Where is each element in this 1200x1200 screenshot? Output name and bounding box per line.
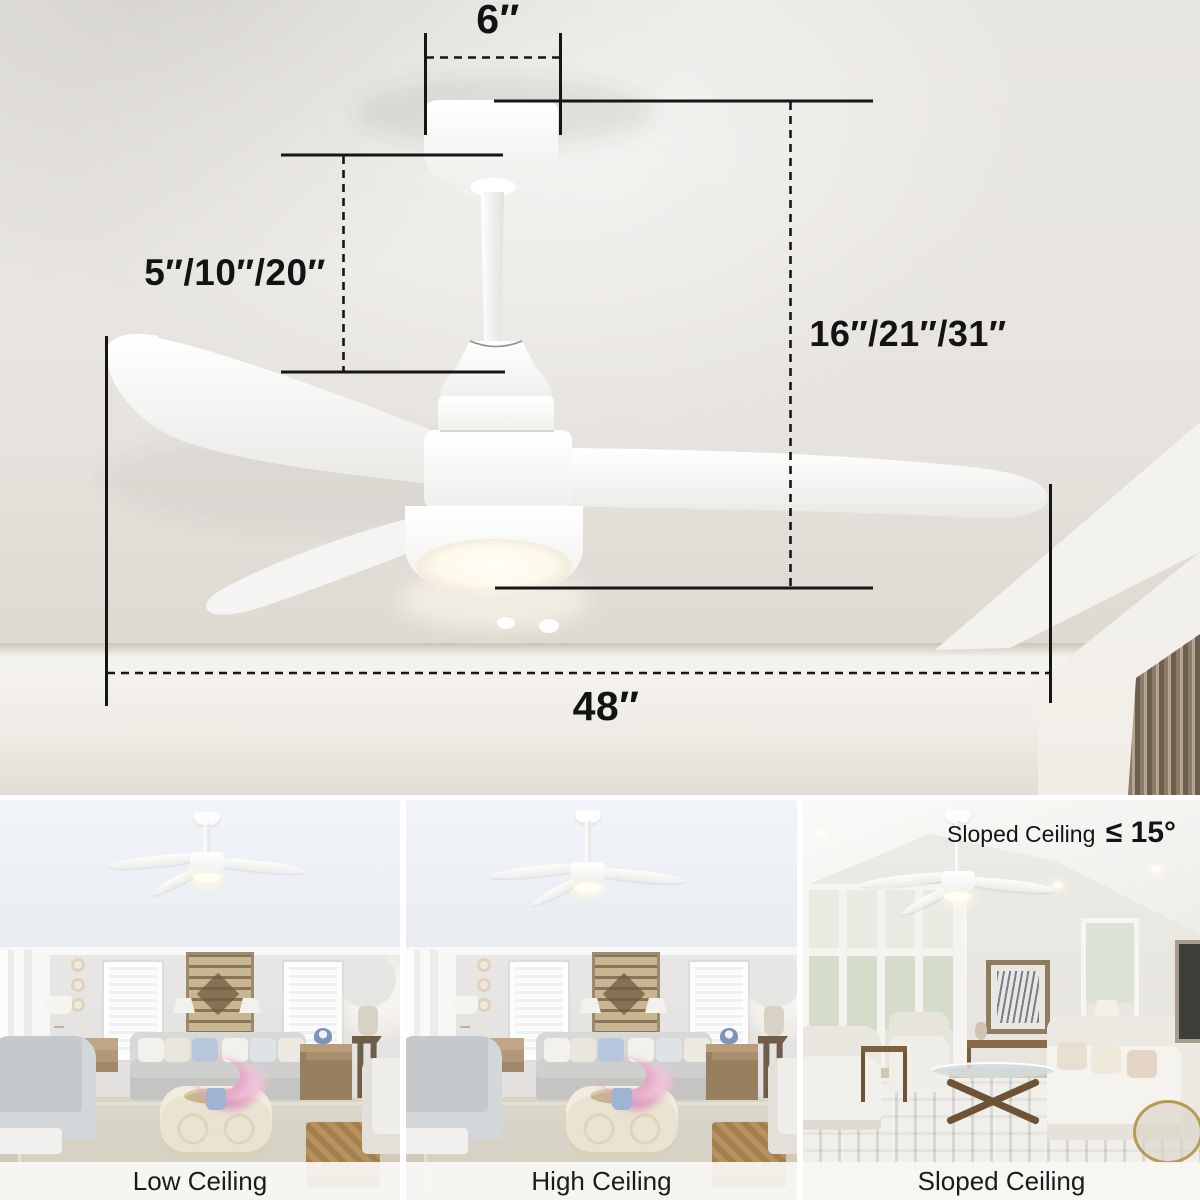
hanging-height-label: 16″/21″/31″ <box>788 315 1028 353</box>
fan-light <box>193 873 221 882</box>
wall-plate-decor <box>477 998 491 1012</box>
framed-artwork <box>986 960 1050 1034</box>
fan-motor <box>190 852 224 874</box>
downrod-length-label: 5″/10″/20″ <box>116 254 354 293</box>
slope-note-limit: ≤ 15° <box>1106 816 1176 849</box>
fan-downrod <box>585 821 591 862</box>
wall-plate-decor <box>71 958 85 972</box>
accent-table <box>1133 1100 1200 1164</box>
flower-bouquet <box>192 1058 240 1092</box>
fan-blade <box>490 861 579 881</box>
blue-white-vase <box>314 1028 332 1044</box>
wall-picture-right <box>1175 940 1200 1043</box>
fan-blade <box>109 851 198 871</box>
slope-limit-note: Sloped Ceiling ≤ 15° <box>947 816 1176 850</box>
wall-plate-decor <box>477 958 491 972</box>
slope-note-text: Sloped Ceiling <box>947 821 1095 847</box>
white-flower-arrangement <box>744 950 797 1008</box>
dimension-diagram-section: 6″ 5″/10″/20″ 16″/21″/31″ 48″ <box>0 0 1200 795</box>
coffee-table <box>931 1062 1055 1146</box>
armchair-left <box>406 1036 502 1140</box>
side-table <box>861 1046 907 1102</box>
table-lamp <box>46 996 72 1014</box>
blade-span-label: 48″ <box>550 685 662 728</box>
caption-high-ceiling: High Ceiling <box>406 1162 797 1200</box>
table-lamp <box>452 996 478 1014</box>
fan-light <box>574 883 602 892</box>
plant-vase <box>764 1006 784 1036</box>
flower-vase <box>612 1088 632 1110</box>
console-vase <box>975 1022 987 1040</box>
recessed-light <box>817 830 827 837</box>
fan-downrod <box>204 823 210 852</box>
ceiling-fan-high <box>478 810 698 940</box>
wall-plate-decor <box>71 998 85 1012</box>
glass-tabletop <box>931 1062 1055 1078</box>
fan-blade <box>598 866 687 886</box>
blue-white-vase <box>720 1028 738 1044</box>
plant-vase <box>358 1006 378 1036</box>
recessed-light <box>1151 866 1161 873</box>
fan-hub <box>97 852 317 912</box>
flower-bouquet <box>598 1058 646 1092</box>
scene-high-ceiling: High Ceiling <box>406 800 797 1200</box>
side-table <box>300 1044 352 1100</box>
fan-blade <box>968 875 1057 895</box>
caption-sloped-ceiling: Sloped Ceiling <box>803 1162 1200 1200</box>
scene-low-ceiling: Low Ceiling <box>0 800 400 1200</box>
fan-motor <box>571 862 605 884</box>
armchair-right <box>362 1058 400 1154</box>
wall-plate-decor <box>477 978 491 992</box>
ceiling-fan-low <box>97 812 317 942</box>
white-flower-arrangement <box>338 950 396 1008</box>
fan-motor <box>941 871 975 893</box>
flower-vase <box>206 1088 226 1110</box>
scene-sloped-ceiling: Sloped Ceiling ≤ 15° Sloped Ceiling <box>803 800 1200 1200</box>
armchair-right <box>768 1058 797 1154</box>
fan-blade <box>860 870 949 890</box>
fan-hub <box>848 871 1068 931</box>
fan-light <box>944 892 972 901</box>
installation-gallery: Low Ceiling <box>0 795 1200 1200</box>
side-table <box>706 1044 758 1100</box>
dimension-lines <box>0 0 1200 795</box>
fan-hub <box>478 862 698 922</box>
caption-low-ceiling: Low Ceiling <box>0 1162 400 1200</box>
canopy-width-label: 6″ <box>452 0 544 41</box>
wall-plate-decor <box>71 978 85 992</box>
armchair-left <box>0 1036 96 1140</box>
fan-blade <box>217 856 306 876</box>
